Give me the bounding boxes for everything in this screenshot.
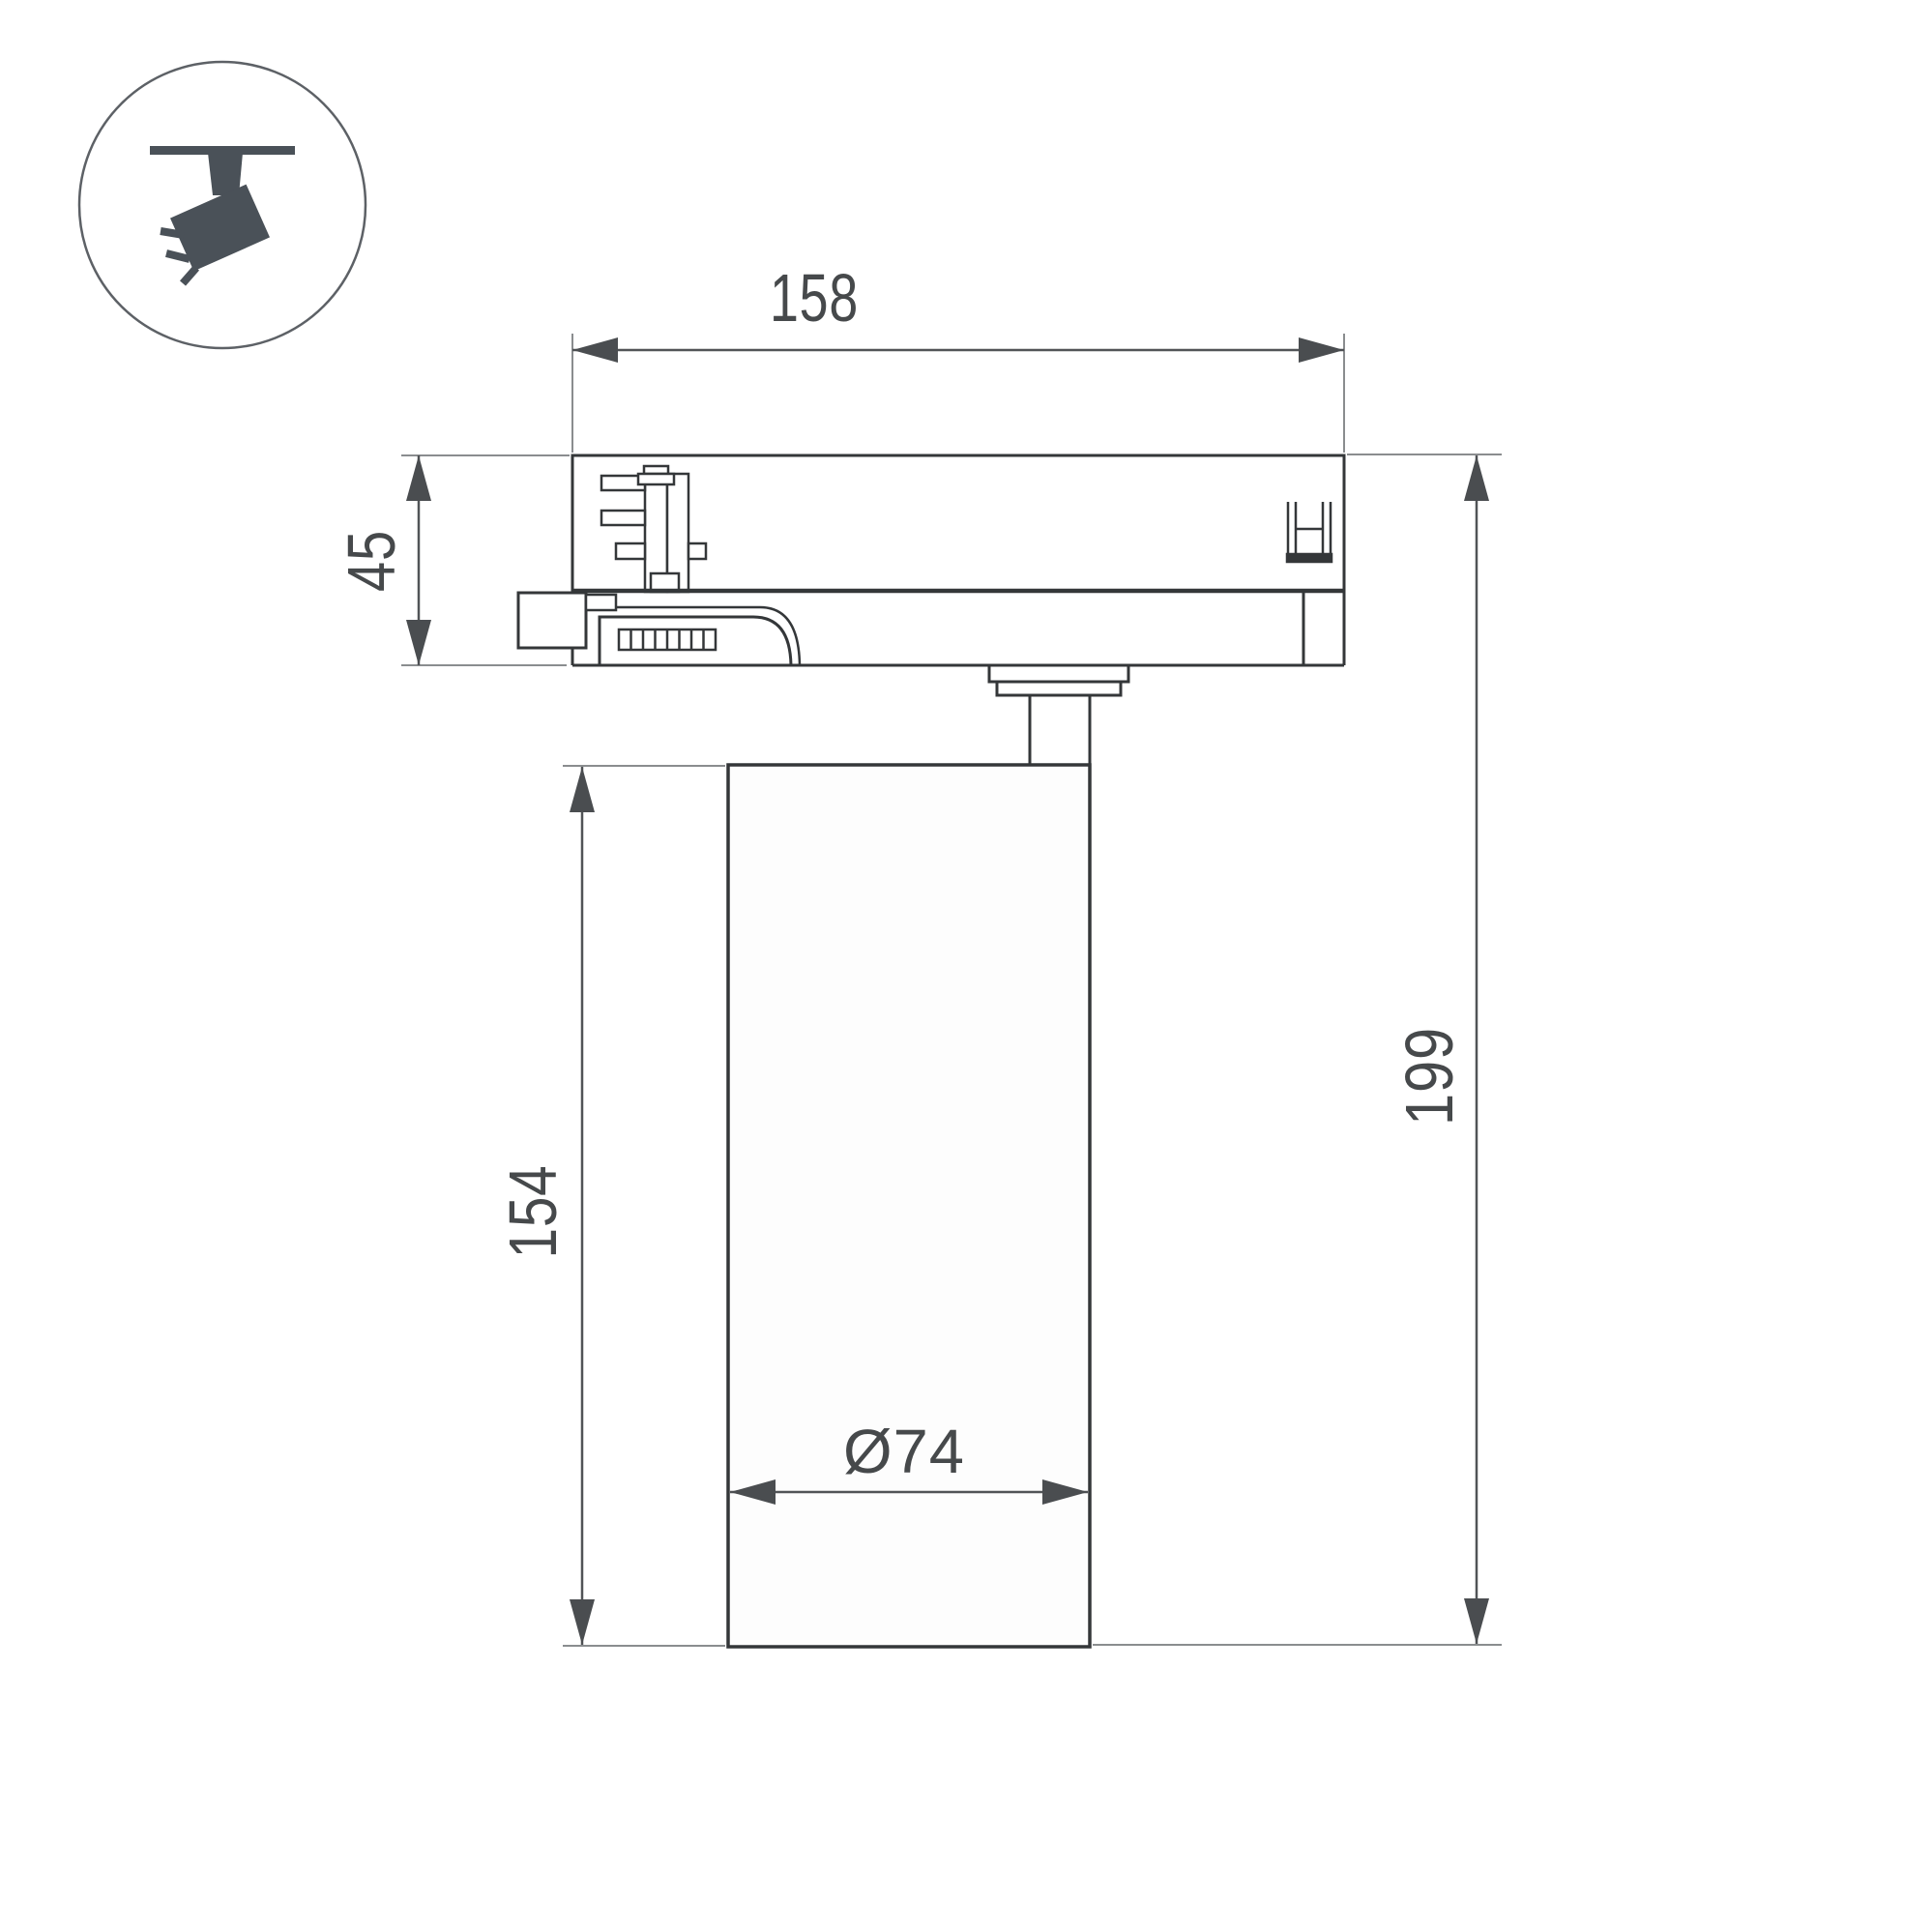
neck-assembly [989, 665, 1128, 765]
track-spotlight-icon [79, 62, 366, 348]
adapter-lower-section [518, 591, 1344, 665]
u-clip-base [1287, 554, 1332, 562]
adapter-latch-step [586, 595, 616, 610]
dim-label-adapter-width: 158 [770, 260, 859, 336]
prong-lower [616, 543, 645, 559]
neck-step-upper [989, 665, 1128, 682]
prong-cap [638, 474, 674, 484]
prong-right [688, 543, 706, 559]
dim-label-body-height: 154 [495, 1165, 571, 1259]
adapter-ribbed-slider [619, 629, 716, 650]
arrow-154-top [570, 767, 595, 812]
neck-stem [1030, 695, 1090, 765]
arrow-199-top [1464, 455, 1489, 501]
drawing-page: 158 45 154 199 Ø74 [0, 0, 1932, 1932]
adapter-latch-knob [518, 593, 586, 648]
arrow-158-right [1299, 337, 1344, 363]
arrow-158-left [572, 337, 618, 363]
arrow-199-bottom [1464, 1598, 1489, 1644]
neck-step-lower [997, 682, 1121, 695]
icon-light-ray [161, 231, 184, 235]
arrow-45-top [406, 455, 431, 501]
arrow-45-bottom [406, 620, 431, 665]
lamp-body-cylinder [728, 765, 1090, 1647]
technical-drawing-canvas: 158 45 154 199 Ø74 [0, 0, 1932, 1932]
dim-label-body-diameter: Ø74 [843, 1417, 965, 1486]
arrow-154-bottom [570, 1599, 595, 1645]
dim-label-total-height: 199 [1391, 1027, 1467, 1126]
prong-middle [601, 511, 645, 525]
dim-label-adapter-height: 45 [334, 530, 409, 592]
